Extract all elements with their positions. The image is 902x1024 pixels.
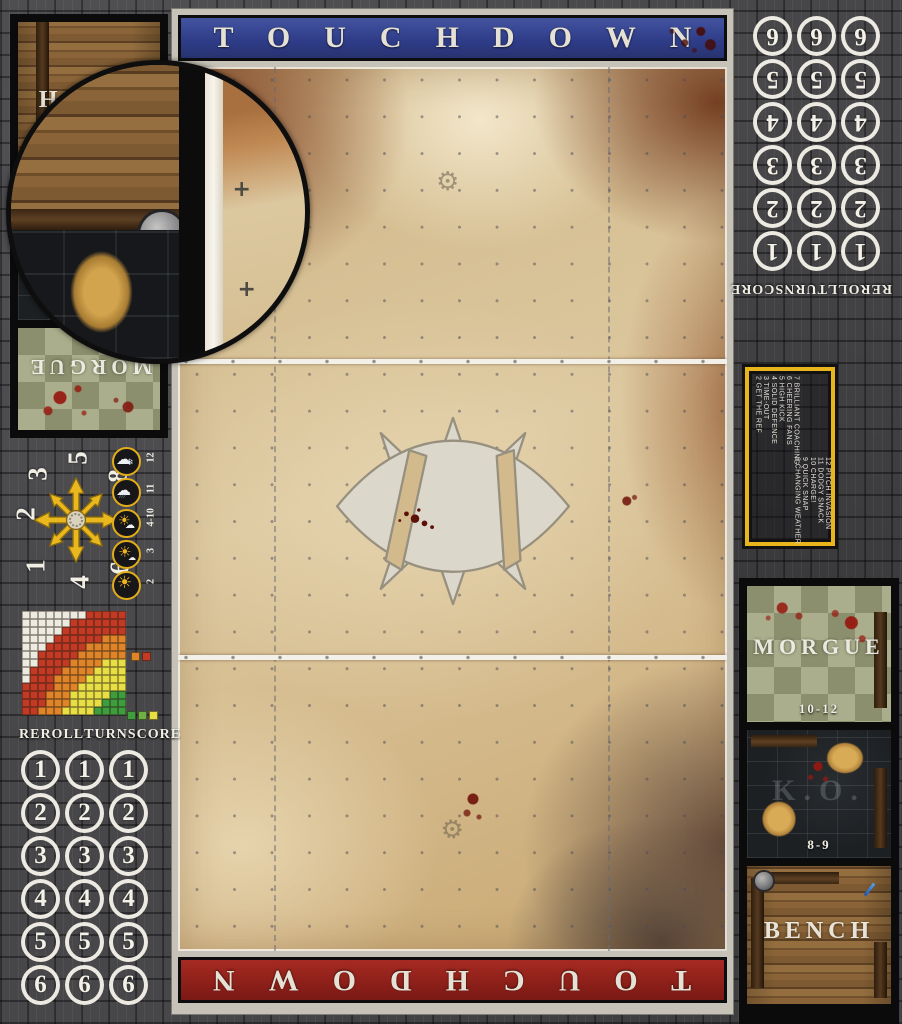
ruler-cell — [110, 627, 118, 635]
ruler-cell — [110, 635, 118, 643]
tracker-circle: 1 — [21, 750, 60, 790]
ruler-cell — [102, 643, 110, 651]
ruler-cell — [22, 619, 30, 627]
ruler-cell — [78, 627, 86, 635]
weather-roll: 3 — [146, 544, 157, 558]
legend-chip — [138, 711, 147, 720]
ruler-cell — [110, 651, 118, 659]
ruler-cell — [46, 643, 54, 651]
ruler-cell — [86, 611, 94, 619]
bench-label: BENCH — [747, 918, 891, 945]
ruler-cell — [70, 699, 78, 707]
ruler-cell — [54, 627, 62, 635]
tracker-circle: 3 — [21, 836, 60, 876]
tracker-circle: 6 — [797, 16, 836, 56]
dugout-right: MORGUE 10-12 K.O. 8-9 BENCH — [739, 578, 899, 1024]
ruler-cell — [118, 611, 126, 619]
tracker-circle: 3 — [65, 836, 104, 876]
ruler-cell — [38, 707, 46, 715]
ruler-cell — [110, 611, 118, 619]
touchdown-banner-top-text: TOUCHDOWN — [179, 21, 725, 55]
weather-roll: 11 — [146, 482, 157, 496]
ruler-cell — [30, 691, 38, 699]
ruler-cell — [110, 659, 118, 667]
ruler-cell — [86, 651, 94, 659]
ruler-cell — [78, 643, 86, 651]
magnified-straw — [58, 235, 145, 349]
ruler-cell — [70, 707, 78, 715]
ruler-cell — [62, 619, 70, 627]
ruler-cell — [86, 627, 94, 635]
touchdown-banner-bottom: TOUCHDOWN — [178, 957, 727, 1003]
ruler-cell — [22, 611, 30, 619]
ruler-cell — [62, 707, 70, 715]
ruler-cell — [30, 627, 38, 635]
ruler-cell — [22, 675, 30, 683]
kickoff-event: 9 QUICK SNAP — [801, 457, 809, 545]
tracker-circle: 2 — [753, 188, 792, 228]
blood-splatter — [458, 785, 488, 825]
ruler-cell — [54, 651, 62, 659]
ruler-cell — [94, 667, 102, 675]
kickoff-event-table: 2 GET THE REF3 TIME-OUT4 SOLID DEFENCE5 … — [745, 367, 835, 546]
ruler-cell — [22, 699, 30, 707]
ruler-cell — [38, 699, 46, 707]
range-ruler-legend — [127, 711, 158, 720]
ruler-cell — [94, 627, 102, 635]
ruler-cell — [110, 667, 118, 675]
grid-cross-marker: + — [237, 277, 255, 302]
ruler-cell — [86, 619, 94, 627]
ruler-cell — [46, 627, 54, 635]
tracker-circle: 3 — [797, 145, 836, 185]
ruler-cell — [54, 659, 62, 667]
ruler-cell — [78, 611, 86, 619]
turn-label: TURN — [84, 727, 128, 743]
tracker-circle: 2 — [109, 793, 148, 833]
kickoff-event: 12 PITCH INVASION — [823, 457, 831, 545]
ruler-cell — [94, 707, 102, 715]
blood-splatter — [656, 20, 720, 58]
blood-bowl-mat: BENCH MORGUE + + + + — [0, 0, 902, 1024]
ruler-cell — [94, 699, 102, 707]
ruler-cell — [54, 683, 62, 691]
ruler-cell — [102, 651, 110, 659]
ruler-cell — [62, 683, 70, 691]
ruler-cell — [94, 675, 102, 683]
ruler-cell — [30, 667, 38, 675]
ruler-cell — [46, 699, 54, 707]
tracker-circle: 3 — [109, 836, 148, 876]
turn-label: TURN — [783, 280, 827, 296]
kickoff-event: 4 SOLID DEFENCE — [769, 376, 777, 542]
legend-chip — [142, 652, 151, 661]
ruler-cell — [78, 619, 86, 627]
ruler-cell — [62, 643, 70, 651]
ruler-cell — [38, 643, 46, 651]
ruler-cell — [78, 691, 86, 699]
ruler-cell — [62, 635, 70, 643]
ruler-cell — [110, 683, 118, 691]
ruler-cell — [22, 667, 30, 675]
tracker-circle: 2 — [21, 793, 60, 833]
ruler-cell — [86, 643, 94, 651]
ruler-cell — [94, 659, 102, 667]
score-label: SCORE — [730, 280, 783, 296]
weather-row: ☀2 — [112, 570, 166, 601]
tracker-circle: 4 — [841, 102, 880, 142]
ruler-cell — [38, 627, 46, 635]
ruler-cell — [46, 659, 54, 667]
ruler-cell — [70, 675, 78, 683]
range-ruler-legend — [131, 652, 151, 661]
ruler-cell — [78, 651, 86, 659]
ruler-cell — [94, 691, 102, 699]
ruler-cell — [22, 643, 30, 651]
tracker-circle: 3 — [753, 145, 792, 185]
ruler-cell — [70, 691, 78, 699]
ruler-cell — [62, 691, 70, 699]
ruler-cell — [38, 667, 46, 675]
ruler-cell — [22, 683, 30, 691]
ruler-cell — [38, 651, 46, 659]
ruler-cell — [22, 627, 30, 635]
ruler-cell — [78, 659, 86, 667]
ruler-cell — [70, 683, 78, 691]
ruler-cell — [46, 611, 54, 619]
ruler-cell — [102, 659, 110, 667]
ruler-cell — [30, 699, 38, 707]
sunny-icon: ☀☁ — [112, 540, 141, 569]
morgue-label: MORGUE — [747, 634, 891, 660]
tracker-grid-right: 666555444333222111 — [753, 16, 881, 271]
weather-roll: 2 — [146, 575, 157, 589]
ruler-cell — [118, 643, 126, 651]
ruler-cell — [86, 675, 94, 683]
ruler-cell — [30, 635, 38, 643]
ruler-cell — [38, 611, 46, 619]
ruler-cell — [62, 667, 70, 675]
ruler-cell — [30, 651, 38, 659]
ruler-cell — [70, 643, 78, 651]
tracker-circle: 6 — [65, 965, 104, 1005]
dugout-right-bench: BENCH — [747, 866, 891, 1004]
ruler-cell — [102, 691, 110, 699]
tracker-circle: 6 — [21, 965, 60, 1005]
ruler-cell — [94, 611, 102, 619]
legend-chip — [127, 711, 136, 720]
scatter-number: 1 — [21, 559, 52, 573]
ruler-cell — [46, 619, 54, 627]
ruler-cell — [102, 635, 110, 643]
ruler-cell — [38, 619, 46, 627]
fair-icon: ☀☁ — [112, 509, 141, 538]
ruler-cell — [118, 667, 126, 675]
ruler-cell — [54, 611, 62, 619]
tracker-circle: 2 — [65, 793, 104, 833]
kickoff-event: 6 CHEERING FANS — [784, 376, 792, 542]
ruler-cell — [22, 707, 30, 715]
tracker-circle: 5 — [753, 59, 792, 99]
ruler-cell — [54, 699, 62, 707]
ruler-cell — [86, 707, 94, 715]
ruler-cell — [118, 675, 126, 683]
tracker-circle: 3 — [841, 145, 880, 185]
score-label: SCORE — [128, 727, 181, 743]
ruler-cell — [30, 707, 38, 715]
ruler-cell — [102, 699, 110, 707]
metal-plate — [755, 872, 773, 890]
tracker-circle: 2 — [841, 188, 880, 228]
tracker-circle: 4 — [109, 879, 148, 919]
kickoff-event: 3 TIME-OUT — [762, 376, 770, 542]
scatter-number: 2 — [11, 507, 42, 521]
ruler-cell — [70, 659, 78, 667]
grid-cross-marker: + — [233, 177, 251, 202]
tracker-circle: 1 — [841, 231, 880, 271]
ruler-cell — [118, 651, 126, 659]
tracker-circle: 4 — [21, 879, 60, 919]
tracker-label-right: REROLL TURN SCORE — [752, 280, 892, 296]
magnified-sideline — [205, 65, 223, 359]
tracker-circle: 5 — [109, 922, 148, 962]
weather-row: ☀☁3 — [112, 539, 166, 570]
touchdown-banner-top: TOUCHDOWN — [178, 15, 727, 61]
ruler-cell — [118, 659, 126, 667]
tracker-circle: 6 — [109, 965, 148, 1005]
ruler-cell — [30, 611, 38, 619]
ruler-cell — [102, 619, 110, 627]
ruler-cell — [118, 699, 126, 707]
ruler-cell — [54, 619, 62, 627]
ruler-cell — [102, 667, 110, 675]
weather-roll: 4-10 — [146, 513, 157, 527]
dugout-right-ko: K.O. 8-9 — [747, 730, 891, 858]
kickoff-event: 2 GET THE REF — [754, 376, 762, 542]
scatter-number: 3 — [23, 467, 54, 481]
ruler-cell — [118, 635, 126, 643]
ruler-cell — [62, 699, 70, 707]
tracker-circle: 6 — [841, 16, 880, 56]
ruler-cell — [86, 699, 94, 707]
ruler-cell — [78, 675, 86, 683]
touchdown-banner-bottom-text: TOUCHDOWN — [179, 963, 725, 997]
legend-chip — [131, 652, 140, 661]
ruler-cell — [118, 707, 126, 715]
ruler-cell — [46, 651, 54, 659]
tracker-label-left: REROLL TURN SCORE — [19, 727, 165, 743]
ruler-cell — [38, 683, 46, 691]
blood-splatter — [108, 390, 148, 424]
ruler-cell — [38, 675, 46, 683]
wood-beam — [874, 612, 887, 708]
tracker-grid-left: 111222333444555666 — [21, 750, 149, 1005]
ruler-cell — [94, 635, 102, 643]
ruler-cell — [78, 667, 86, 675]
scatter-arrows-icon — [33, 475, 119, 565]
blizzard-icon: ☁❄ — [112, 447, 141, 476]
kickoff-column-8-12: 8 CHANGING WEATHER9 QUICK SNAP10 CHARGE!… — [793, 457, 831, 545]
pen — [864, 883, 876, 897]
tracker-circle: 2 — [797, 188, 836, 228]
tracker-circle: 1 — [109, 750, 148, 790]
tracker-circle: 4 — [797, 102, 836, 142]
wide-zone-line — [608, 67, 610, 951]
ruler-cell — [46, 675, 54, 683]
ruler-cell — [110, 699, 118, 707]
ruler-cell — [46, 635, 54, 643]
ruler-cell — [86, 659, 94, 667]
spiked-ball-logo — [328, 416, 578, 606]
tracker-circle: 1 — [753, 231, 792, 271]
grid-cross-marker: + — [287, 277, 305, 302]
ruler-cell — [70, 611, 78, 619]
ruler-cell — [22, 691, 30, 699]
kickoff-event: 10 CHARGE! — [808, 457, 816, 545]
ruler-cell — [22, 635, 30, 643]
ruler-cell — [70, 667, 78, 675]
ruler-cell — [54, 707, 62, 715]
ruler-cell — [70, 619, 78, 627]
tracker-circle: 5 — [841, 59, 880, 99]
blood-splatter — [618, 492, 640, 510]
ruler-cell — [118, 683, 126, 691]
ruler-cell — [70, 635, 78, 643]
ruler-cell — [86, 691, 94, 699]
tracker-circle: 1 — [65, 750, 104, 790]
ruler-cell — [110, 707, 118, 715]
ruler-cell — [46, 683, 54, 691]
ruler-cell — [118, 619, 126, 627]
ruler-cell — [118, 691, 126, 699]
ruler-cell — [22, 651, 30, 659]
field-third-line — [178, 359, 727, 364]
blood-splatter — [803, 752, 833, 788]
ruler-cell — [30, 659, 38, 667]
blood-splatter — [36, 380, 96, 424]
ruler-cell — [22, 659, 30, 667]
ruler-cell — [94, 643, 102, 651]
ruler-cell — [30, 619, 38, 627]
kickoff-event: 11 DODGY SNACK — [816, 457, 824, 545]
weather-row: ☁∕∕∕11 — [112, 477, 166, 508]
ruler-cell — [94, 683, 102, 691]
ruler-cell — [118, 627, 126, 635]
kickoff-event: 5 HIGH KICK — [777, 376, 785, 542]
ruler-cell — [30, 643, 38, 651]
ruler-cell — [102, 707, 110, 715]
field-third-line — [178, 655, 727, 660]
ruler-cell — [78, 683, 86, 691]
magnified-pitch-sand: + + + + — [223, 65, 305, 359]
tracker-circle: 1 — [797, 231, 836, 271]
scatter-number: 5 — [63, 451, 94, 465]
weather-roll: 12 — [146, 451, 157, 465]
ruler-cell — [54, 675, 62, 683]
ruler-cell — [54, 691, 62, 699]
ruler-cell — [46, 667, 54, 675]
ruler-cell — [70, 627, 78, 635]
tracker-circle: 5 — [21, 922, 60, 962]
ruler-cell — [54, 667, 62, 675]
zoom-detail-circle: + + + + — [6, 60, 310, 364]
dugout-right-morgue: MORGUE 10-12 — [747, 586, 891, 722]
ruler-cell — [102, 611, 110, 619]
weather-row: ☀☁4-10 — [112, 508, 166, 539]
range-ruler-grid — [22, 611, 126, 715]
ruler-cell — [102, 683, 110, 691]
ruler-cell — [78, 707, 86, 715]
rain-icon: ☁∕∕∕ — [112, 478, 141, 507]
ko-range: 8-9 — [747, 837, 891, 853]
scatter-number: 4 — [65, 575, 96, 589]
ruler-cell — [46, 707, 54, 715]
wood-beam — [874, 942, 887, 998]
ruler-cell — [54, 643, 62, 651]
weather-table: ☁❄12☁∕∕∕11☀☁4-10☀☁3☀2 — [112, 446, 166, 601]
ruler-cell — [102, 675, 110, 683]
wood-beam — [751, 735, 817, 747]
ruler-cell — [30, 683, 38, 691]
legend-chip — [149, 711, 158, 720]
weather-row: ☁❄12 — [112, 446, 166, 477]
ruler-cell — [78, 699, 86, 707]
ruler-cell — [62, 675, 70, 683]
reroll-label: REROLL — [19, 727, 84, 743]
ruler-cell — [94, 651, 102, 659]
ruler-cell — [110, 675, 118, 683]
tracker-circle: 5 — [797, 59, 836, 99]
ruler-cell — [38, 691, 46, 699]
morgue-range: 10-12 — [747, 701, 891, 717]
tracker-circle: 5 — [65, 922, 104, 962]
ruler-cell — [86, 667, 94, 675]
ruler-cell — [86, 635, 94, 643]
ruler-cell — [110, 619, 118, 627]
ruler-cell — [70, 651, 78, 659]
grid-cross-marker: + — [280, 89, 298, 114]
blood-splatter — [757, 592, 813, 632]
kickoff-event: 8 CHANGING WEATHER — [793, 457, 801, 545]
ruler-cell — [62, 627, 70, 635]
ruler-cell — [62, 659, 70, 667]
ruler-cell — [94, 619, 102, 627]
ruler-cell — [38, 635, 46, 643]
ruler-cell — [30, 675, 38, 683]
wood-beam — [769, 872, 839, 884]
ruler-cell — [110, 691, 118, 699]
ruler-cell — [110, 643, 118, 651]
ruler-cell — [78, 635, 86, 643]
reroll-label: REROLL — [827, 280, 892, 296]
ruler-cell — [102, 627, 110, 635]
tracker-circle: 6 — [753, 16, 792, 56]
ruler-cell — [62, 611, 70, 619]
tracker-circle: 4 — [753, 102, 792, 142]
ruler-cell — [38, 659, 46, 667]
ruler-cell — [62, 651, 70, 659]
magnified-bench-wood — [11, 65, 179, 230]
magnified-ko-stone — [11, 230, 179, 359]
tracker-circle: 4 — [65, 879, 104, 919]
ruler-cell — [46, 691, 54, 699]
range-ruler — [22, 611, 126, 715]
ruler-cell — [86, 683, 94, 691]
magnified-dugout-frame — [179, 65, 205, 359]
scorching-icon: ☀ — [112, 571, 141, 600]
gear-emblem-icon: ⚙ — [436, 167, 459, 197]
ruler-cell — [54, 635, 62, 643]
